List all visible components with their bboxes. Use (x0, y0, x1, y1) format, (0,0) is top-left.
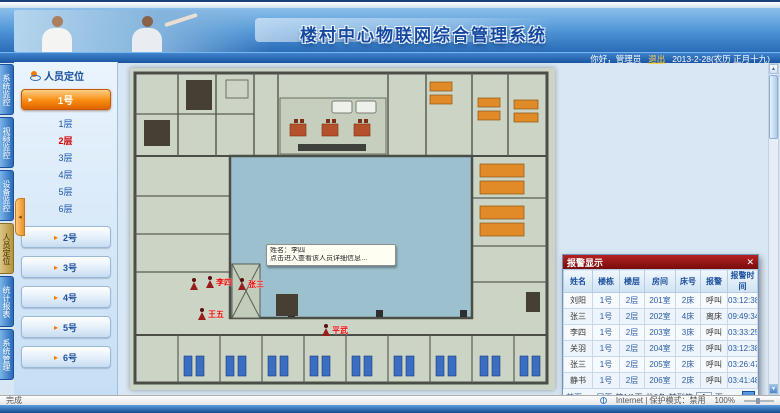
vertical-scrollbar[interactable]: ▲ ▼ (768, 63, 779, 395)
person-marker[interactable]: 张三 (238, 278, 246, 290)
person-name-label: 张三 (248, 279, 264, 290)
floor-list: 1层 2层 3层 4层 5层 6层 (14, 116, 117, 218)
window-bottom-bar (0, 405, 780, 413)
browser-top-strip (0, 0, 780, 8)
building-5-button[interactable]: ▸5号 (21, 316, 111, 338)
person-marker[interactable]: 李四 (206, 276, 214, 288)
person-marker[interactable]: 平武 (322, 324, 330, 336)
person-name-label: 平武 (332, 325, 348, 336)
floor-item-2[interactable]: 2层 (14, 133, 117, 150)
header-banner: 楼村中心物联网综合管理系统 (0, 8, 780, 52)
alarm-table: 姓名 楼栋 楼层 房间 床号 报警 报警时间 刘阳1号2层201室2床呼叫03:… (563, 269, 758, 389)
tab-statistics[interactable]: 统计报表 (0, 276, 14, 327)
tooltip-line1: 姓名：李四 (270, 247, 392, 255)
floor-item-3[interactable]: 3层 (14, 150, 117, 167)
tab-video-monitor[interactable]: 视频监控 (0, 117, 14, 168)
table-row[interactable]: 关羽1号2层204室2床呼叫03:12:38 (564, 341, 758, 357)
zoom-slider[interactable] (744, 400, 774, 402)
panel-title: 人员定位 (44, 68, 84, 83)
sidebar-collapse-handle[interactable]: ◂ (15, 198, 25, 236)
app-window: 楼村中心物联网综合管理系统 你好，管理员 退出 2013-2-28(农历 正月十… (0, 0, 780, 413)
floorplan-drawing (130, 68, 555, 390)
building-6-button[interactable]: ▸6号 (21, 346, 111, 368)
tab-system-manage[interactable]: 系统管理 (0, 329, 14, 380)
arrow-icon: ▸ (54, 233, 58, 242)
banner-photo (14, 10, 270, 52)
banner-pointing-arm (164, 13, 198, 27)
alarm-popup-title: 报警显示 (567, 256, 603, 269)
table-row[interactable]: 张三1号2层202室4床离床09:49:34 (564, 309, 758, 325)
person-marker[interactable]: 王五 (198, 308, 206, 320)
banner-person-silhouette (132, 16, 162, 52)
building-1-button[interactable]: ▸ 1号 (21, 89, 111, 110)
person-name-label: 李四 (216, 277, 232, 288)
banner-person-silhouette (42, 16, 72, 52)
panel-header: 人员定位 (14, 62, 117, 86)
person-tooltip: 姓名：李四 点击进入查看该人员详细信息… (266, 244, 396, 266)
floor-item-4[interactable]: 4层 (14, 167, 117, 184)
floor-item-5[interactable]: 5层 (14, 184, 117, 201)
scrollbar-thumb[interactable] (769, 75, 778, 139)
sidebar-panel: 人员定位 ▸ 1号 1层 2层 3层 4层 5层 6层 ▸2号 ▸3号 ▸4号 … (14, 62, 118, 395)
greeting-text: 你好，管理员 (590, 53, 641, 65)
building-3-button[interactable]: ▸3号 (21, 256, 111, 278)
scroll-up-icon[interactable]: ▲ (769, 64, 778, 74)
app-title: 楼村中心物联网综合管理系统 (300, 21, 547, 46)
table-row[interactable]: 李四1号2层203室3床呼叫03:33:25 (564, 325, 758, 341)
user-info: 你好，管理员 退出 2013-2-28(农历 正月十九) (590, 53, 770, 65)
person-marker[interactable] (190, 278, 198, 290)
person-name-label: 王五 (208, 309, 224, 320)
floorplan[interactable]: 李四 张三 王五 平武 姓名：李四 点击进入查看该人员详细信息… (130, 68, 555, 390)
arrow-icon: ▸ (29, 95, 33, 104)
arrow-icon: ▸ (54, 323, 58, 332)
alarm-popup-titlebar: 报警显示 ✕ (563, 255, 758, 269)
arrow-icon: ▸ (54, 353, 58, 362)
table-row[interactable]: 刘阳1号2层201室2床呼叫03:12:38 (564, 293, 758, 309)
alarm-table-header: 姓名 楼栋 楼层 房间 床号 报警 报警时间 (564, 270, 758, 293)
date-text: 2013-2-28(农历 正月十九) (672, 53, 770, 65)
alarm-popup: 报警显示 ✕ 姓名 楼栋 楼层 房间 床号 报警 报警时间 刘阳1号2层201室… (562, 254, 759, 407)
browser-status-bar: 完成 Internet | 保护模式：禁用 100% (0, 395, 780, 405)
building-2-button[interactable]: ▸2号 (21, 226, 111, 248)
logout-link[interactable]: 退出 (648, 53, 665, 65)
close-icon[interactable]: ✕ (746, 258, 754, 267)
table-row[interactable]: 静书1号2层206室2床呼叫03:41:48 (564, 373, 758, 389)
tab-personnel-locate[interactable]: 人员定位 (0, 223, 14, 274)
scroll-down-icon[interactable]: ▼ (769, 384, 778, 394)
tab-device-monitor[interactable]: 设备监控 (0, 170, 14, 221)
floor-item-1[interactable]: 1层 (14, 116, 117, 133)
locate-icon (30, 71, 40, 81)
arrow-icon: ▸ (54, 263, 58, 272)
tooltip-line2: 点击进入查看该人员详细信息… (270, 255, 392, 263)
table-row[interactable]: 张三1号2层205室2床呼叫03:26:47 (564, 357, 758, 373)
internet-zone-icon (600, 397, 607, 404)
module-tabs: 系统监控 视频监控 设备监控 人员定位 统计报表 系统管理 (0, 64, 14, 382)
floor-item-6[interactable]: 6层 (14, 201, 117, 218)
arrow-icon: ▸ (54, 293, 58, 302)
zoom-level[interactable]: 100% (715, 396, 735, 405)
building-4-button[interactable]: ▸4号 (21, 286, 111, 308)
tab-system-monitor[interactable]: 系统监控 (0, 64, 14, 115)
